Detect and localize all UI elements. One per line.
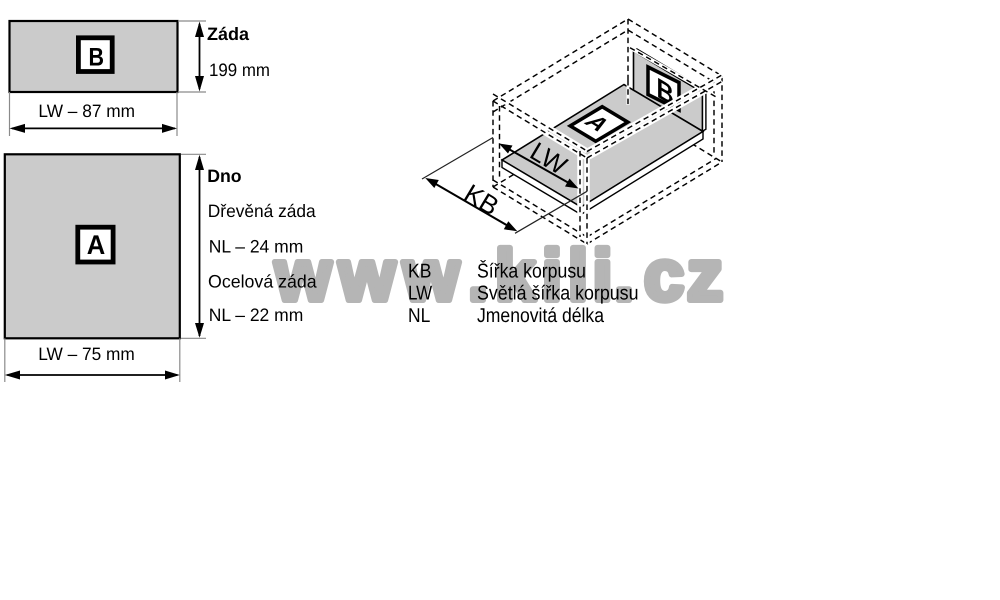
svg-text:Světlá šířka korpusu: Světlá šířka korpusu bbox=[477, 283, 639, 305]
svg-text:NL: NL bbox=[408, 305, 430, 327]
svg-text:LW – 87 mm: LW – 87 mm bbox=[38, 101, 135, 121]
svg-text:A: A bbox=[87, 230, 106, 260]
svg-text:Záda: Záda bbox=[207, 24, 250, 44]
svg-text:LW: LW bbox=[408, 283, 432, 305]
svg-text:LW – 75 mm: LW – 75 mm bbox=[38, 344, 135, 364]
svg-text:NL – 24 mm: NL – 24 mm bbox=[209, 237, 304, 257]
svg-text:Dřevěná záda: Dřevěná záda bbox=[208, 201, 317, 221]
svg-text:Ocelová záda: Ocelová záda bbox=[208, 272, 318, 292]
svg-text:Jmenovitá délka: Jmenovitá délka bbox=[477, 305, 605, 327]
svg-text:KB: KB bbox=[408, 261, 431, 283]
svg-text:NL – 22 mm: NL – 22 mm bbox=[209, 305, 304, 325]
svg-text:Šířka korpusu: Šířka korpusu bbox=[477, 260, 586, 283]
svg-text:B: B bbox=[88, 43, 104, 71]
svg-text:Dno: Dno bbox=[207, 166, 241, 186]
svg-text:199 mm: 199 mm bbox=[209, 60, 270, 80]
